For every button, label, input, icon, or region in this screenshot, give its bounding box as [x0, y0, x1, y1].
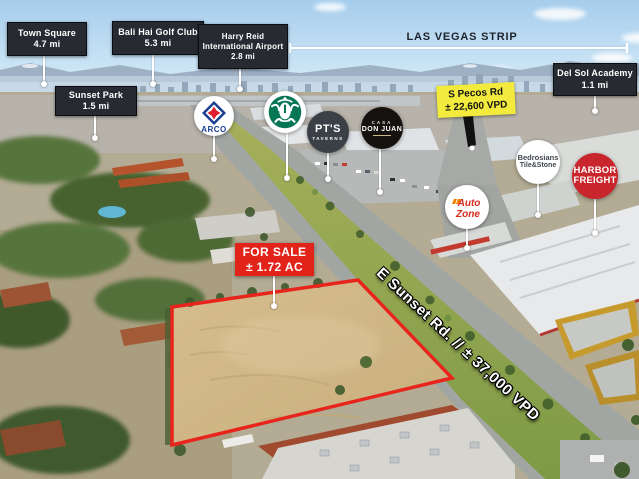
callout-leader-line — [152, 55, 154, 82]
logo-anchor-dot — [325, 176, 331, 182]
callout-del-sol: Del Sol Academy 1.1 mi — [553, 63, 637, 96]
callout-town-square: Town Square 4.7 mi — [7, 22, 87, 56]
pecos-traffic-badge: S Pecos Rd ± 22,600 VPD — [436, 82, 516, 118]
for-sale-badge: FOR SALE ± 1.72 AC — [235, 243, 314, 276]
callout-name: Harry Reid International Airport — [201, 32, 285, 52]
autozone-line2: Zone — [455, 209, 480, 220]
for-sale-leader-line — [273, 276, 275, 304]
logo-anchor-dot — [464, 245, 470, 251]
logo-anchor-dot — [284, 175, 290, 181]
callout-distance: 1.5 mi — [83, 101, 110, 113]
callout-anchor-dot — [41, 81, 47, 87]
for-sale-acreage: ± 1.72 AC — [246, 260, 303, 275]
callout-name: Sunset Park — [69, 90, 123, 102]
donjuan-casa-text: CASA — [372, 120, 393, 125]
callout-harry-reid: Harry Reid International Airport 2.8 mi — [198, 24, 288, 69]
autozone-wordmark-icon: Auto Zone — [445, 185, 489, 229]
callout-anchor-dot — [592, 108, 598, 114]
bedrosians-logo: Bedrosians Tile&Stone — [516, 140, 560, 184]
callout-distance: 4.7 mi — [34, 39, 61, 51]
arco-logo: ARCO — [194, 96, 234, 136]
starbucks-siren-icon — [264, 91, 306, 133]
callout-leader-line — [94, 116, 96, 136]
donjuan-rule — [373, 135, 391, 136]
autozone-logo: Auto Zone — [445, 185, 489, 229]
logo-leader-line — [213, 136, 215, 157]
strip-measure-line — [290, 47, 627, 49]
callout-leader-line — [43, 56, 45, 82]
logo-anchor-dot — [377, 189, 383, 195]
bedrosians-line1: Bedrosians — [518, 154, 559, 163]
for-sale-line: FOR SALE — [243, 245, 307, 260]
logo-leader-line — [466, 229, 468, 246]
strip-measure-tick-right — [626, 43, 628, 53]
logo-leader-line — [286, 132, 288, 176]
callout-anchor-dot — [92, 135, 98, 141]
callout-name: Del Sol Academy — [557, 68, 633, 80]
aerial-listing-image: LAS VEGAS STRIP Town Square 4.7 mi Bali … — [0, 0, 639, 479]
callout-leader-line — [239, 69, 241, 87]
logo-leader-line — [327, 153, 329, 177]
logo-anchor-dot — [211, 156, 217, 162]
logo-leader-line — [537, 184, 539, 213]
arco-wordmark: ARCO — [201, 125, 227, 134]
autozone-line1: Auto — [457, 198, 481, 209]
callout-bali-hai: Bali Hai Golf Club 5.3 mi — [112, 21, 204, 55]
strip-measure-tick-left — [289, 43, 291, 53]
callout-name: Town Square — [18, 28, 76, 40]
arco-spark-icon: ARCO — [194, 96, 234, 136]
bedrosians-line2: Tile&Stone — [520, 162, 556, 170]
logo-anchor-dot — [592, 230, 598, 236]
casa-don-juan-logo: CASA DON JUAN — [361, 107, 403, 149]
aerial-photo — [0, 0, 639, 479]
callout-sunset-park: Sunset Park 1.5 mi — [55, 86, 137, 116]
pecos-traffic-volume: ± 22,600 VPD — [445, 98, 508, 114]
pts-taverns-logo: PT'S TAVERNS — [307, 111, 349, 153]
callout-distance: 2.8 mi — [231, 52, 255, 62]
starbucks-logo — [264, 91, 306, 133]
las-vegas-strip-label: LAS VEGAS STRIP — [362, 31, 562, 43]
donjuan-wordmark: DON JUAN — [362, 126, 403, 133]
pts-wordmark: PT'S — [315, 124, 341, 135]
harbor-line2: FREIGHT — [573, 176, 616, 187]
harbor-freight-logo: HARBOR FREIGHT — [572, 153, 618, 199]
callout-distance: 5.3 mi — [145, 38, 172, 50]
logo-leader-line — [594, 199, 596, 231]
logo-anchor-dot — [535, 212, 541, 218]
callout-distance: 1.1 mi — [582, 80, 609, 92]
pts-subtitle: TAVERNS — [312, 136, 343, 141]
for-sale-anchor-dot — [271, 303, 277, 309]
callout-anchor-dot — [150, 81, 156, 87]
callout-name: Bali Hai Golf Club — [118, 27, 198, 39]
callout-anchor-dot — [237, 86, 243, 92]
logo-leader-line — [379, 149, 381, 190]
